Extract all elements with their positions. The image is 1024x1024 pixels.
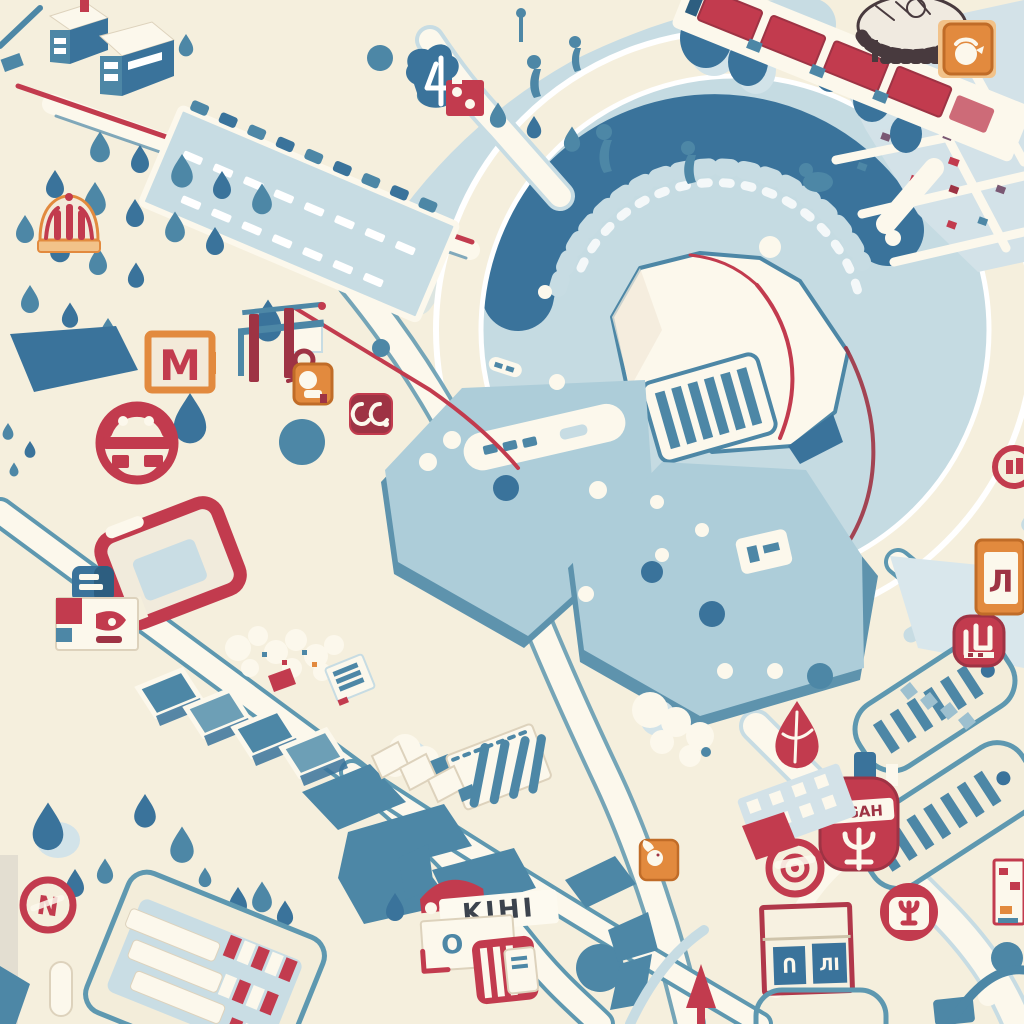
- red-dotted-box: [446, 78, 484, 116]
- cup-badge-icon[interactable]: [880, 883, 938, 941]
- blue-poi-icon[interactable]: [72, 566, 114, 602]
- plaza-dot: [538, 285, 552, 299]
- bird-poi-icon[interactable]: [640, 840, 678, 880]
- chimney: [80, 0, 89, 12]
- stamp-badge-icon[interactable]: [954, 616, 1004, 666]
- m-sign-glyph: M: [159, 341, 201, 390]
- map-page: M: [0, 0, 1024, 1024]
- sw-badge-icon[interactable]: N: [23, 880, 73, 930]
- face-badge-icon[interactable]: [100, 406, 174, 480]
- board-glyph-right: ЛI: [819, 955, 840, 976]
- board-glyph-left: Ո: [782, 953, 797, 977]
- roundabout-pond: [279, 419, 325, 465]
- gate-sign[interactable]: Л: [976, 540, 1024, 614]
- white-column: [50, 962, 72, 1016]
- tree-dot: [367, 45, 393, 71]
- red-poi-icon[interactable]: [350, 394, 392, 434]
- tree-dot: [372, 339, 390, 357]
- shop-window-glyph: O: [440, 930, 464, 961]
- tree-dot: [807, 663, 833, 689]
- shop-kiosk: [471, 935, 539, 1005]
- plaza-dot: [759, 236, 781, 258]
- m-sign[interactable]: M: [146, 334, 216, 390]
- kettle-poi-icon[interactable]: [938, 20, 996, 78]
- scroll-badge-icon[interactable]: [995, 448, 1024, 486]
- storefront-sign[interactable]: [56, 598, 138, 650]
- city-map-canvas[interactable]: M: [0, 0, 1024, 1024]
- edge-shop: [994, 860, 1024, 924]
- orange-poi-icon[interactable]: [294, 364, 332, 404]
- gate-sign-glyph: Л: [989, 565, 1014, 600]
- statue-icon: [799, 163, 813, 177]
- notice-board[interactable]: Ո ЛI: [762, 904, 853, 993]
